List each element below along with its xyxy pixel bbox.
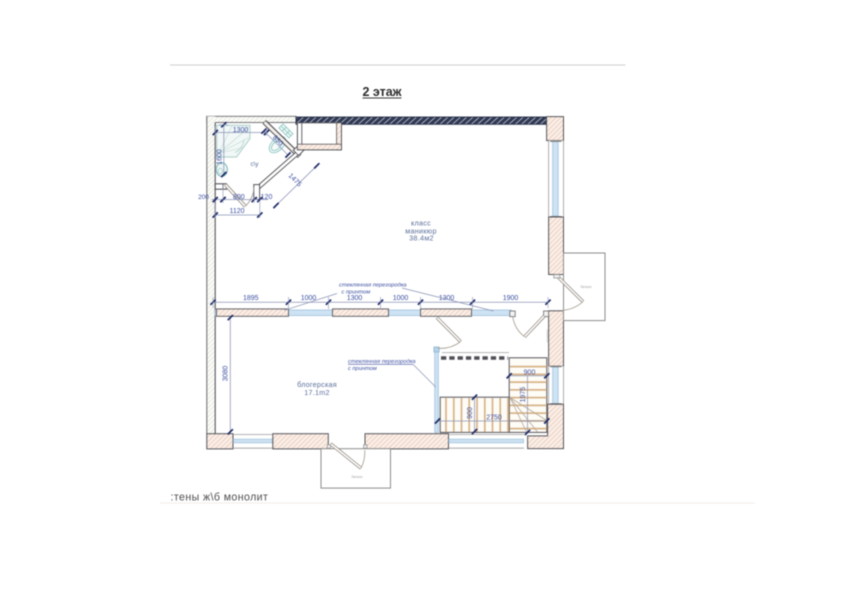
svg-text:2750: 2750	[486, 415, 502, 422]
svg-text:стеклянная перегородка: стеклянная перегородка	[339, 283, 407, 289]
svg-text:1000: 1000	[393, 295, 409, 302]
svg-text:с принтом: с принтом	[342, 289, 371, 295]
svg-text:38.4м2: 38.4м2	[409, 234, 434, 243]
svg-text:балкон: балкон	[580, 285, 591, 289]
svg-text:17.1m2: 17.1m2	[304, 388, 329, 397]
svg-text:балкон: балкон	[351, 475, 362, 479]
svg-text:800: 800	[233, 194, 245, 201]
svg-text:1300: 1300	[233, 127, 249, 134]
svg-text:2 этаж: 2 этаж	[362, 85, 401, 99]
svg-text:1900: 1900	[503, 295, 519, 302]
svg-text:1975: 1975	[520, 387, 527, 403]
svg-text:1300: 1300	[347, 295, 363, 302]
svg-text:1300: 1300	[439, 295, 455, 302]
svg-text:900: 900	[467, 407, 474, 419]
svg-text:с\у: с\у	[251, 161, 260, 168]
svg-text:огражден: огражден	[545, 329, 549, 343]
svg-text:1600: 1600	[217, 149, 224, 165]
svg-text:3080: 3080	[223, 366, 230, 382]
svg-text:с принтом: с принтом	[348, 366, 377, 372]
svg-text:1895: 1895	[243, 295, 259, 302]
svg-text::тены ж\б монолит: :тены ж\б монолит	[171, 492, 269, 504]
svg-text:200: 200	[198, 194, 209, 201]
svg-text:120: 120	[261, 194, 273, 201]
svg-text:1475: 1475	[287, 172, 303, 188]
svg-text:1120: 1120	[229, 208, 244, 215]
svg-text:900: 900	[524, 370, 536, 377]
